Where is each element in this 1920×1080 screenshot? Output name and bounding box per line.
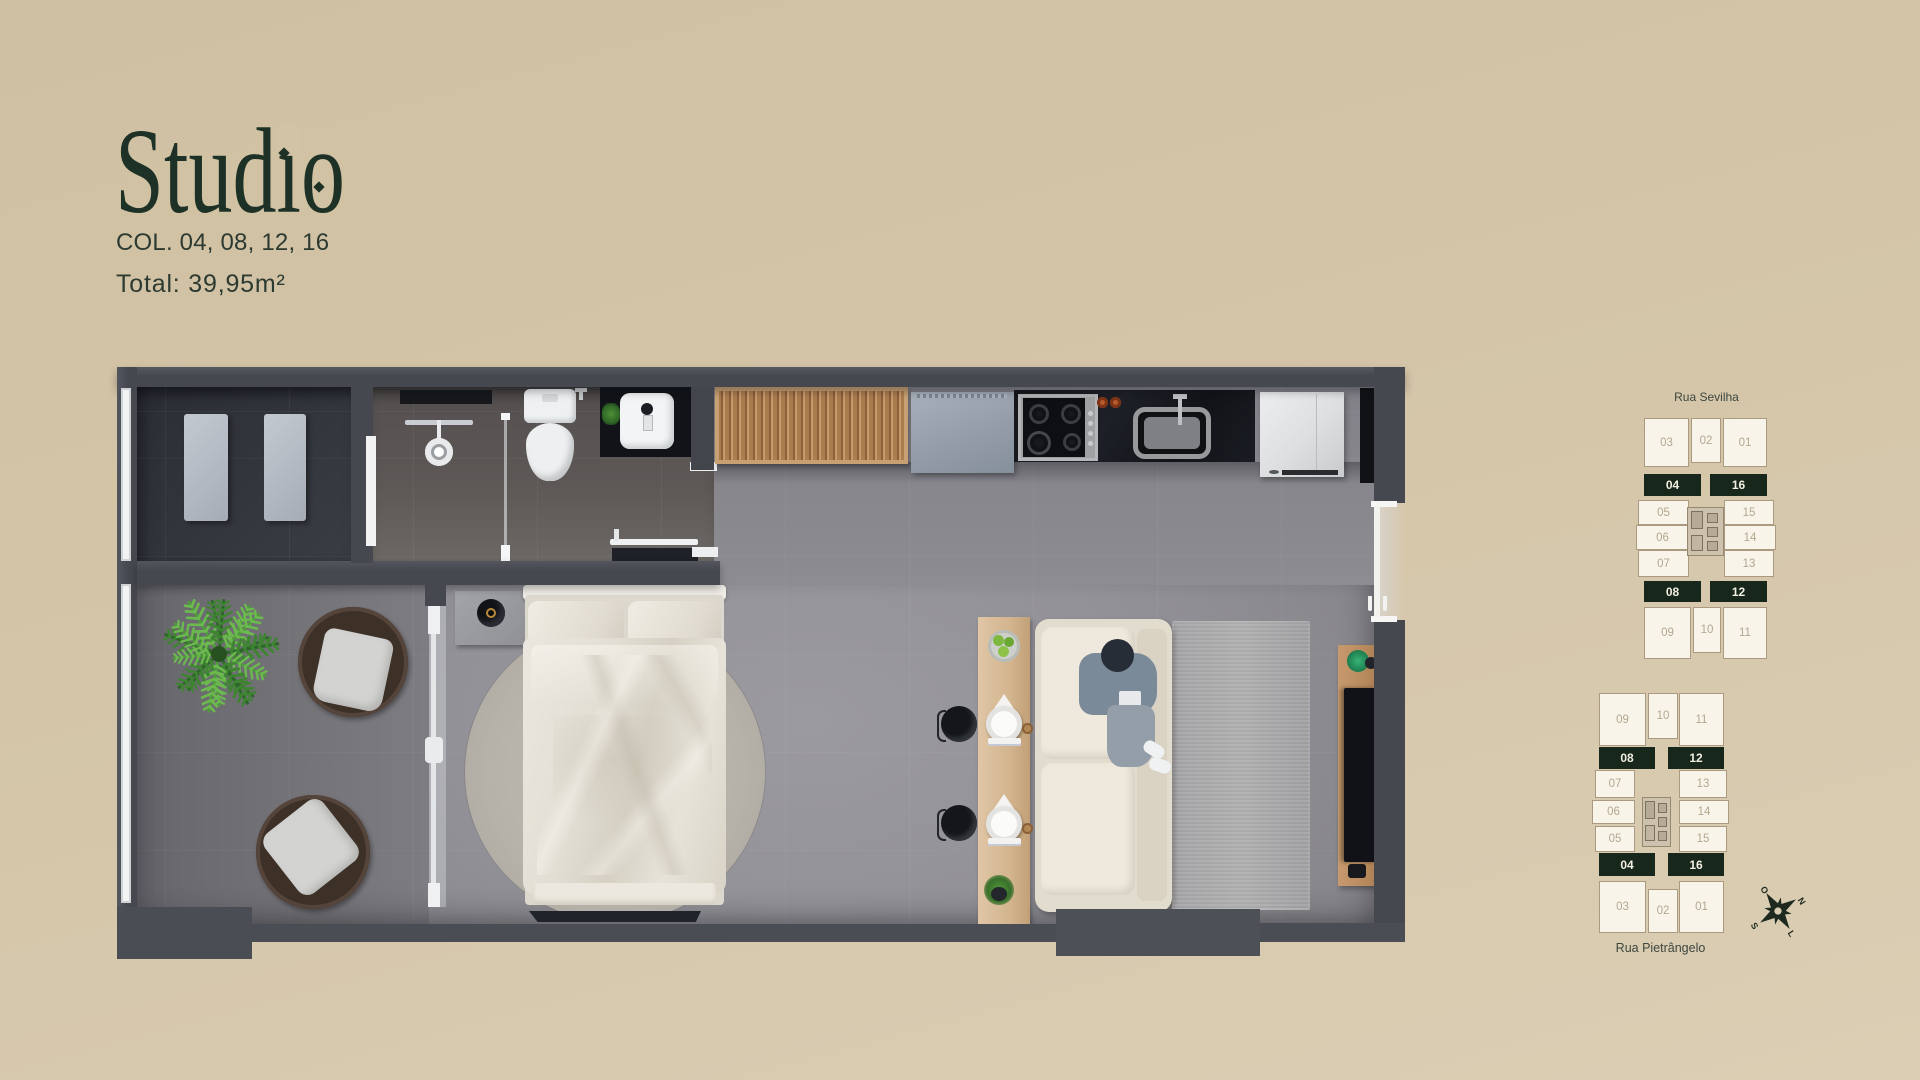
svg-text:S: S [1749, 921, 1761, 931]
svg-text:O: O [1758, 884, 1770, 895]
svg-text:L: L [1786, 929, 1798, 939]
svg-text:N: N [1796, 896, 1808, 907]
svg-text:Studio: Studio [115, 119, 345, 223]
